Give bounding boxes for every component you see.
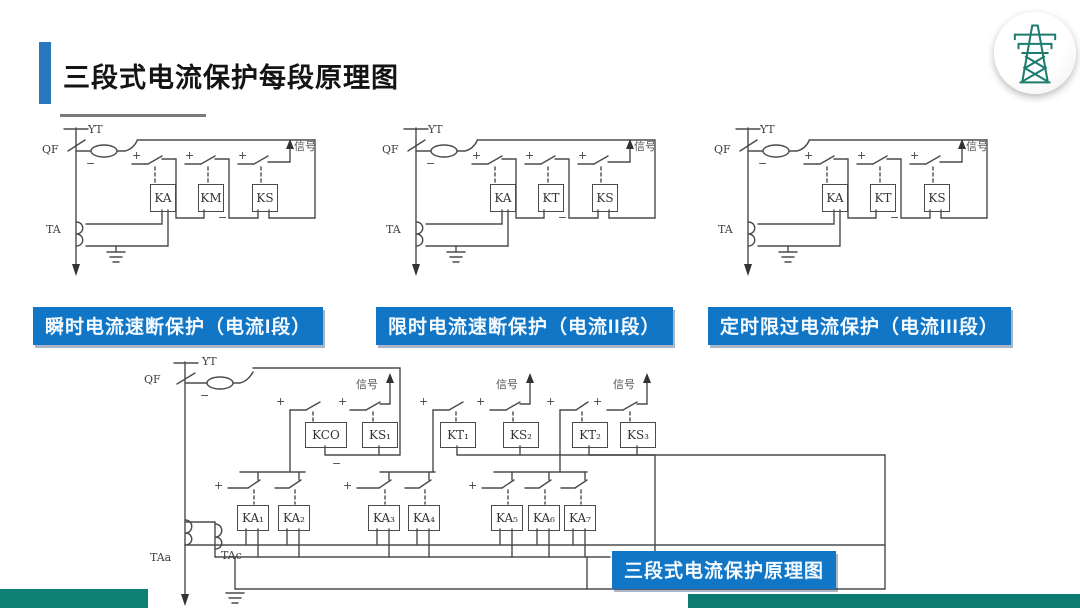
ta-label: TA (46, 224, 61, 235)
combined-caption: 三段式电流保护原理图 (612, 551, 836, 589)
relay-box-ka2: KA₂ (278, 505, 310, 531)
stage2-caption: 限时电流速断保护（电流II段） (376, 307, 673, 345)
plus-mark: + (343, 480, 352, 491)
plus-mark: + (910, 150, 919, 161)
minus-mark: − (758, 158, 767, 169)
relay-box-kt: KT (538, 184, 564, 212)
minus-mark: − (218, 212, 227, 223)
qf-label: QF (382, 144, 399, 155)
signal-label: 信号 (356, 380, 378, 391)
plus-mark: + (132, 150, 141, 161)
yt-label: YT (428, 124, 443, 135)
relay-box-ka7: KA₇ (564, 505, 596, 531)
plus-mark: + (338, 396, 347, 407)
relay-box-kt2: KT₂ (572, 422, 608, 448)
relay-box-kt: KT (870, 184, 896, 212)
yt-label: YT (202, 356, 217, 367)
relay-box-ka6: KA₆ (528, 505, 560, 531)
plus-mark: + (593, 396, 602, 407)
stage1-circuit-svg (28, 118, 328, 308)
stage2-circuit-panel: QF YT − TA + + + − 信号 KA KT KS (368, 118, 668, 308)
company-logo-badge (994, 12, 1076, 94)
stage1-caption: 瞬时电流速断保护（电流I段） (33, 307, 323, 345)
plus-mark: + (578, 150, 587, 161)
signal-label: 信号 (613, 380, 635, 391)
relay-box-kco: KCO (305, 422, 347, 448)
plus-mark: + (419, 396, 428, 407)
signal-label: 信号 (966, 142, 988, 153)
stage1-circuit-panel: QF YT − TA + + + − 信号 KA KM KS (28, 118, 328, 308)
relay-box-ka: KA (490, 184, 516, 212)
stage3-circuit-panel: QF YT − TA + + + − 信号 KA KT KS (700, 118, 1000, 308)
qf-label: QF (144, 374, 161, 385)
taa-label: TAa (150, 552, 171, 563)
ta-label: TA (386, 224, 401, 235)
relay-box-ka4: KA₄ (408, 505, 440, 531)
relay-box-ks: KS (924, 184, 950, 212)
tac-label: TAc (221, 550, 242, 561)
relay-box-ks: KS (252, 184, 278, 212)
title-underline (60, 114, 206, 117)
relay-box-kt1: KT₁ (440, 422, 476, 448)
yt-label: YT (88, 124, 103, 135)
footer-teal-band-right (688, 594, 1080, 608)
title-accent-bar (39, 42, 51, 104)
slide: 三段式电流保护每段原理图 QF YT − TA + + + − 信号 KA KM… (0, 0, 1080, 608)
minus-mark: − (426, 158, 435, 169)
relay-box-ka1: KA₁ (237, 505, 269, 531)
relay-box-ka: KA (822, 184, 848, 212)
plus-mark: + (468, 480, 477, 491)
signal-label: 信号 (496, 380, 518, 391)
relay-box-km: KM (198, 184, 224, 212)
signal-label: 信号 (294, 142, 316, 153)
plus-mark: + (185, 150, 194, 161)
minus-mark: − (890, 212, 899, 223)
relay-box-ks3: KS₃ (620, 422, 656, 448)
minus-mark: − (558, 212, 567, 223)
plus-mark: + (476, 396, 485, 407)
relay-box-ka: KA (150, 184, 176, 212)
minus-mark: − (86, 158, 95, 169)
footer-teal-band-left (0, 589, 148, 608)
plus-mark: + (472, 150, 481, 161)
stage2-circuit-svg (368, 118, 668, 308)
relay-box-ka5: KA₅ (491, 505, 523, 531)
signal-label: 信号 (634, 142, 656, 153)
plus-mark: + (546, 396, 555, 407)
ta-label: TA (718, 224, 733, 235)
transmission-tower-icon (1007, 20, 1063, 86)
plus-mark: + (857, 150, 866, 161)
plus-mark: + (804, 150, 813, 161)
minus-mark: − (332, 458, 341, 469)
stage3-caption: 定时限过电流保护（电流III段） (708, 307, 1011, 345)
stage3-circuit-svg (700, 118, 1000, 308)
plus-mark: + (238, 150, 247, 161)
plus-mark: + (276, 396, 285, 407)
relay-box-ka3: KA₃ (368, 505, 400, 531)
relay-box-ks: KS (592, 184, 618, 212)
page-title: 三段式电流保护每段原理图 (63, 56, 399, 95)
qf-label: QF (714, 144, 731, 155)
yt-label: YT (760, 124, 775, 135)
plus-mark: + (525, 150, 534, 161)
relay-box-ks2: KS₂ (503, 422, 539, 448)
minus-mark: − (200, 390, 209, 401)
relay-box-ks1: KS₁ (362, 422, 398, 448)
plus-mark: + (214, 480, 223, 491)
qf-label: QF (42, 144, 59, 155)
